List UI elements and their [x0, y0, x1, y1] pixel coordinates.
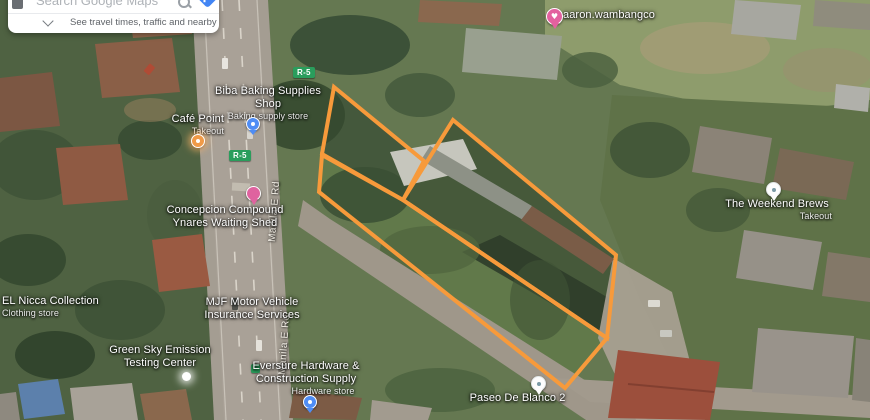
poi-label-aaron-wambangco[interactable]: aaron.wambangco — [563, 9, 655, 22]
poi-label-concepcion[interactable]: Concepcion Compound Ynares Waiting Shed — [163, 204, 287, 230]
saved-place-pin-heart-icon[interactable]: ♥ — [546, 8, 563, 25]
parcel-lower-strip[interactable] — [319, 155, 607, 388]
menu-icon[interactable] — [12, 0, 23, 9]
heart-icon: ♥ — [551, 13, 558, 21]
poi-category: Takeout — [150, 126, 224, 137]
explore-glyph — [772, 188, 776, 192]
place-pin-concepcion-icon[interactable] — [246, 186, 261, 201]
cafe-glyph — [196, 139, 200, 143]
poi-category: Takeout — [722, 211, 832, 222]
poi-name: aaron.wambangco — [563, 9, 655, 21]
poi-label-eversure[interactable]: Eversure Hardware & Construction Supply … — [247, 360, 365, 397]
travel-times-label: See travel times, traffic and nearby pla… — [70, 17, 219, 28]
poi-label-el-nicca[interactable]: EL Nicca Collection Clothing store — [2, 295, 99, 319]
poi-label-paseo-de-blanco[interactable]: Paseo De Blanco 2 — [460, 392, 575, 405]
google-maps-satellite-screenshot: { "search_card": { "placeholder": "Searc… — [0, 0, 870, 420]
search-input[interactable]: Search Google Maps — [36, 0, 158, 8]
explore-glyph — [537, 382, 541, 386]
parcel-main-lot[interactable] — [403, 120, 616, 338]
chevron-down-icon — [42, 15, 53, 26]
explore-pin-weekend-brews-icon[interactable] — [766, 182, 781, 197]
shop-pin-biba-icon[interactable] — [246, 117, 260, 131]
route-badge-r5-upper: R-5 — [293, 67, 315, 78]
search-card: Search Google Maps See travel times, tra… — [8, 0, 219, 33]
poi-name: MJF Motor Vehicle Insurance Services — [204, 296, 299, 321]
poi-label-mjf[interactable]: MJF Motor Vehicle Insurance Services — [197, 296, 307, 322]
route-badge-r5-lower: R-5 — [229, 150, 251, 161]
shop-pin-eversure-icon[interactable] — [303, 395, 317, 409]
poi-name: Eversure Hardware & Construction Supply — [252, 360, 359, 385]
explore-pin-paseo-icon[interactable] — [531, 376, 546, 391]
poi-label-green-sky[interactable]: Green Sky Emission Testing Center — [104, 344, 216, 370]
poi-dot-green-sky-icon[interactable] — [182, 372, 191, 381]
poi-name: Green Sky Emission Testing Center — [109, 344, 210, 369]
poi-name: EL Nicca Collection — [2, 295, 99, 307]
search-icon[interactable] — [178, 0, 190, 8]
poi-name: Biba Baking Supplies Shop — [215, 85, 321, 110]
poi-label-biba[interactable]: Biba Baking Supplies Shop Baking supply … — [213, 85, 323, 122]
shop-glyph — [251, 122, 255, 126]
poi-name: Paseo De Blanco 2 — [470, 392, 566, 404]
poi-label-cafe-point[interactable]: Café Point Takeout — [150, 113, 224, 137]
poi-name: Concepcion Compound Ynares Waiting Shed — [167, 204, 284, 229]
directions-icon[interactable] — [197, 0, 218, 8]
cafe-pin-cafe-point-icon[interactable] — [191, 134, 205, 148]
tool-glyph — [308, 400, 312, 404]
poi-category: Clothing store — [2, 308, 99, 319]
travel-times-row[interactable]: See travel times, traffic and nearby pla… — [8, 14, 219, 33]
poi-category: Baking supply store — [213, 111, 323, 122]
poi-name: Café Point — [172, 113, 224, 125]
